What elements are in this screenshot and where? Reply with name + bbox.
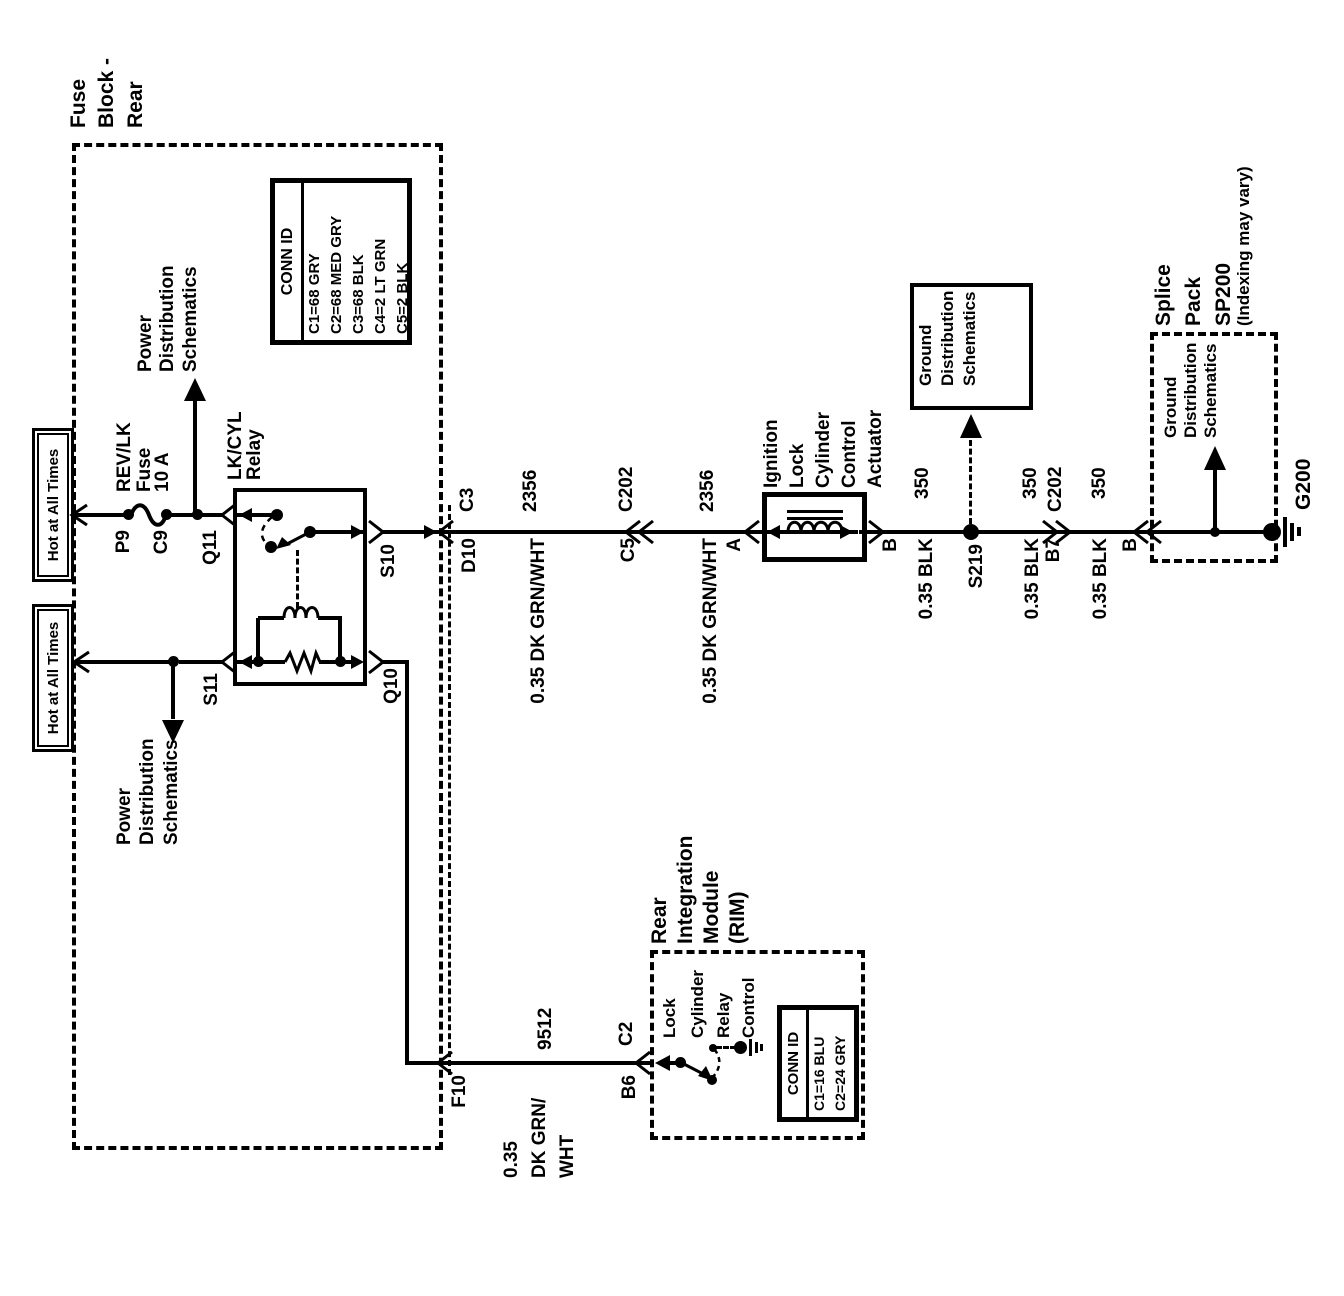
- wire-main-lower: [859, 530, 1150, 534]
- wire-name-grnwht-b: 0.35 DK GRN/WHT: [700, 538, 722, 704]
- wire-left-to-relay: [179, 660, 223, 664]
- fuse-block-title-line2: Block -: [95, 58, 119, 128]
- connector-label-c2: C2: [616, 1022, 638, 1046]
- rim-title-line4: (RIM): [726, 892, 750, 944]
- wire-q10-horizontal: [405, 660, 409, 1065]
- rim-signal-line3: Relay: [714, 993, 734, 1038]
- conn-id-row: C1=16 BLU: [809, 1010, 830, 1117]
- wire-junction-to-relay: [199, 513, 223, 517]
- actuator-internal-arrow-up: [767, 525, 780, 539]
- relay-contact-b-dot: [265, 541, 277, 553]
- hot-at-all-times-box-left: Hot at All Times: [32, 604, 74, 752]
- relay-contact-a-dot: [271, 509, 283, 521]
- rim-signal-line2: Cylinder: [688, 970, 708, 1038]
- conn-id-row: C2=24 GRY: [830, 1010, 851, 1117]
- hot-at-all-times-box-right: Hot at All Times: [32, 428, 74, 582]
- relay-switch-out-arrow: [351, 525, 364, 539]
- circuit-350-c: 350: [1089, 467, 1111, 499]
- pin-label-b6: B6: [619, 1075, 641, 1099]
- rim-signal-line1: Lock: [660, 998, 680, 1038]
- power-dist-1-line1: Power: [135, 315, 157, 372]
- connector-label-c202-b: C202: [1045, 467, 1067, 512]
- circuit-350-a: 350: [912, 467, 934, 499]
- hot-at-all-times-label: Hot at All Times: [37, 433, 69, 577]
- relay-control-link-dashed: [296, 550, 299, 608]
- pin-label-a: A: [724, 538, 746, 552]
- splice-gdist-line2: Distribution: [1181, 343, 1201, 438]
- rim-ground-link-dashed: [716, 1046, 736, 1049]
- pin-label-p9: P9: [113, 530, 135, 553]
- fuse-terminal-dot-p9: [123, 509, 134, 520]
- splice-pack-title-line2: Pack: [1182, 277, 1206, 326]
- rim-entry-arrow: [655, 1055, 670, 1071]
- fuse-rating: 10 A: [152, 453, 174, 492]
- rim-conn-id-table: CONN ID C1=16 BLU C2=24 GRY: [777, 1005, 859, 1122]
- ground-bar-2: [1290, 523, 1294, 541]
- power-dist-1-line2: Distribution: [157, 265, 179, 372]
- wire-to-rim: [409, 1061, 650, 1065]
- rim-ground-bar-3: [760, 1044, 763, 1051]
- rim-switch-pivot-dot: [707, 1075, 717, 1085]
- relay-title-line2: Relay: [244, 429, 266, 480]
- actuator-core-line-1: [787, 517, 843, 520]
- branch-ground-dist-dashed: [969, 440, 972, 524]
- conn-id-row: C5=2 BLK: [392, 183, 414, 340]
- actuator-title-line3: Cylinder: [813, 412, 835, 488]
- power-dist-1-line3: Schematics: [180, 266, 202, 372]
- pin-label-f10: F10: [449, 1075, 471, 1108]
- branch-power-dist-1: [193, 401, 197, 515]
- conn-id-row: C1=68 GRY: [304, 183, 326, 340]
- ground-bar-3: [1297, 527, 1301, 536]
- pin-label-c9: C9: [151, 530, 173, 554]
- actuator-title-line1: Ignition: [761, 419, 783, 488]
- ground-g200-label: G200: [1292, 459, 1316, 510]
- rim-title-line1: Rear: [648, 897, 672, 944]
- pin-label-b-actuator: B: [880, 538, 902, 552]
- coil-branch-bottom: [338, 618, 342, 662]
- pin-label-d10: D10: [459, 538, 481, 573]
- connector-label-c202-a: C202: [616, 467, 638, 512]
- g200-ground-dot: [1263, 523, 1281, 541]
- rim-signal-line4: Control: [739, 978, 759, 1038]
- relay-feed-arrow-switch: [239, 508, 252, 522]
- wire-main-upper: [382, 530, 762, 534]
- ground-dist-arrow-1: [960, 414, 982, 438]
- circuit-2356-b: 2356: [697, 470, 719, 512]
- power-dist-2-line3: Schematics: [161, 739, 183, 845]
- circuit-2356-a: 2356: [520, 470, 542, 512]
- actuator-core-line-2: [787, 510, 843, 513]
- pin-label-q10: Q10: [381, 668, 403, 704]
- power-dist-arrow-1: [184, 378, 206, 401]
- actuator-title-line4: Control: [839, 420, 861, 488]
- conn-id-row: C2=68 MED GRY: [326, 183, 348, 340]
- wire-name-blk-c: 0.35 BLK: [1090, 538, 1112, 619]
- splice-s219-dot: [963, 524, 979, 540]
- ground-dist-box-line1: Ground: [916, 325, 936, 386]
- coil-branch-top: [256, 618, 260, 662]
- splice-gdist-line3: Schematics: [1201, 344, 1221, 439]
- conn-id-row: C3=68 BLK: [348, 183, 370, 340]
- splice-pack-title-line3: SP200: [1212, 263, 1236, 326]
- conn-id-header: CONN ID: [782, 1010, 809, 1117]
- wire-b-plus-right: [74, 513, 130, 517]
- connector-label-c3: C3: [457, 488, 479, 512]
- fuse-block-exit-arrow: [424, 525, 437, 539]
- fuse-block-title-line3: Rear: [124, 81, 148, 128]
- conn-id-header: CONN ID: [275, 183, 304, 340]
- rotated-diagram-canvas: Hot at All Times Hot at All Times Fuse B…: [0, 0, 1344, 1296]
- ground-dist-box-line3: Schematics: [960, 292, 980, 387]
- branch-splice-gdist: [1213, 470, 1217, 532]
- wire-name-rim-line1: 0.35: [501, 1141, 523, 1178]
- fuse-block-conn-id-table: CONN ID C1=68 GRY C2=68 MED GRY C3=68 BL…: [270, 178, 412, 345]
- connector-face-dashed-line: [448, 505, 451, 1075]
- rim-title-line3: Module: [700, 871, 724, 945]
- pin-label-b-splice: B: [1120, 538, 1142, 552]
- pin-label-s10: S10: [378, 544, 400, 578]
- circuit-9512: 9512: [535, 1008, 557, 1050]
- ground-dist-arrow-2: [1204, 446, 1226, 470]
- power-dist-2-line1: Power: [114, 788, 136, 845]
- wire-name-rim-line3: WHT: [557, 1135, 579, 1178]
- splice-s219-label: S219: [966, 544, 988, 588]
- fuse-name-line1: REV/LK: [114, 422, 136, 492]
- pin-label-b7: B7: [1043, 538, 1065, 562]
- wire-name-blk-a: 0.35 BLK: [916, 538, 938, 619]
- ground-dist-box-line2: Distribution: [938, 291, 958, 386]
- rim-title-line2: Integration: [674, 836, 698, 945]
- splice-gdist-line1: Ground: [1161, 377, 1181, 438]
- ground-bar-1: [1283, 517, 1287, 547]
- pin-label-q11: Q11: [200, 530, 222, 565]
- actuator-internal-arrow-down: [840, 525, 853, 539]
- circuit-350-b: 350: [1020, 467, 1042, 499]
- relay-coil-out-arrow: [351, 655, 364, 669]
- conn-id-row: C4=2 LT GRN: [370, 183, 392, 340]
- fuse-block-title-line1: Fuse: [67, 79, 91, 128]
- splice-pack-note: (Indexing may vary): [1234, 166, 1254, 326]
- wire-name-blk-b: 0.35 BLK: [1022, 538, 1044, 619]
- rim-ground-dot: [734, 1041, 747, 1054]
- splice-pack-title-line1: Splice: [1152, 264, 1176, 326]
- rim-switch-contact-dot: [675, 1057, 686, 1068]
- lk-cyl-relay-box: [233, 488, 367, 686]
- actuator-title-line2: Lock: [787, 444, 809, 488]
- rim-ground-bar-2: [755, 1042, 758, 1053]
- branch-power-dist-2: [171, 661, 175, 719]
- wire-name-grnwht-a: 0.35 DK GRN/WHT: [528, 538, 550, 704]
- wire-name-rim-line2: DK GRN/: [529, 1098, 551, 1178]
- wiring-diagram-page: Hot at All Times Hot at All Times Fuse B…: [0, 0, 1344, 1296]
- actuator-title-line5: Actuator: [865, 410, 887, 488]
- power-dist-2-line2: Distribution: [137, 738, 159, 845]
- hot-at-all-times-label: Hot at All Times: [37, 609, 69, 747]
- pin-label-c5: C5: [618, 538, 640, 562]
- pin-label-s11: S11: [201, 673, 223, 706]
- rim-ground-bar-1: [749, 1039, 752, 1056]
- wire-b-plus-left: [76, 660, 175, 664]
- coil-branch-right-upper: [258, 616, 284, 620]
